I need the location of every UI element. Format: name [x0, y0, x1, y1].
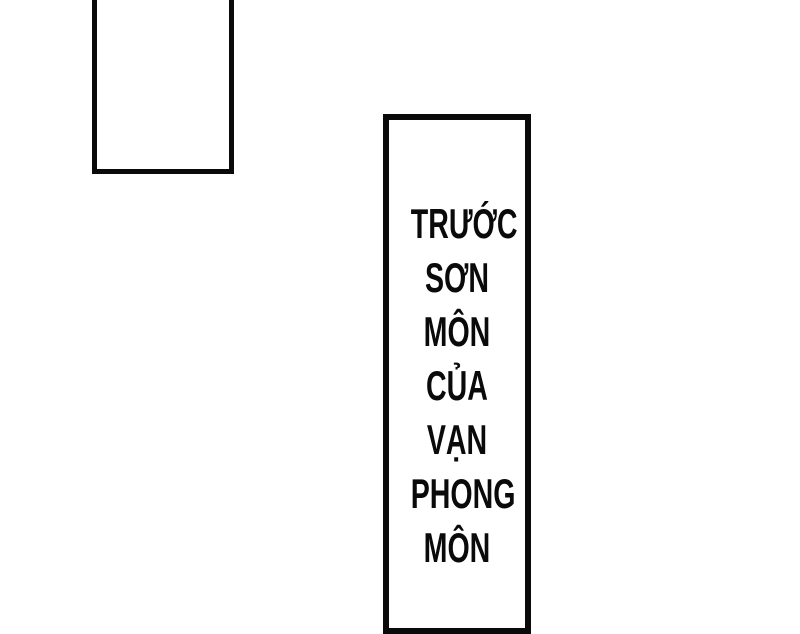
caption-line-1: TRƯỚC	[411, 197, 503, 251]
caption-line-6: PHONG	[411, 467, 503, 521]
caption-line-4: CỦA	[411, 359, 503, 413]
caption-line-2: SƠN	[411, 251, 503, 305]
caption-line-5: VẠN	[411, 413, 503, 467]
comic-page: TRƯỚC SƠN MÔN CỦA VẠN PHONG MÔN	[0, 0, 800, 600]
caption-line-3: MÔN	[411, 305, 503, 359]
caption-panel: TRƯỚC SƠN MÔN CỦA VẠN PHONG MÔN	[383, 114, 531, 634]
caption-text-block: TRƯỚC SƠN MÔN CỦA VẠN PHONG MÔN	[411, 197, 503, 575]
caption-line-7: MÔN	[411, 521, 503, 575]
empty-panel	[92, 0, 234, 174]
